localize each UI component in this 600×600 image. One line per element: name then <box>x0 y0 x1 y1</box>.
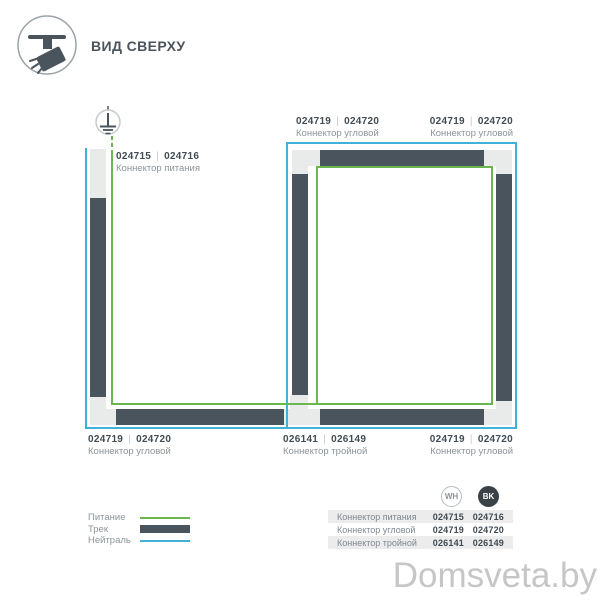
code-separator: | <box>318 434 331 445</box>
row-name: Коннектор питания <box>328 512 424 522</box>
power-line-swatch <box>140 517 190 519</box>
wh-label: WH <box>445 492 458 501</box>
bk-color-badge: BK <box>478 486 499 507</box>
part-codes: 026141|026149 <box>283 434 367 446</box>
label-corner-top-left: 024719|024720 Коннектор угловой <box>296 116 379 139</box>
row-name: Коннектор тройной <box>328 538 424 548</box>
code-bk: 024720 <box>344 116 379 127</box>
connector-name: Коннектор угловой <box>88 447 171 458</box>
part-codes: 024719|024720 <box>430 434 513 446</box>
wh-color-badge: WH <box>441 486 462 507</box>
row-bk-code: 024720 <box>464 525 504 535</box>
connector-name: Коннектор угловой <box>430 129 513 140</box>
track-left-bottom <box>116 409 284 425</box>
watermark: Domsveta.by <box>393 556 597 596</box>
row-bk-code: 026149 <box>464 538 504 548</box>
track-right-left <box>292 174 308 395</box>
connector-name: Коннектор угловой <box>296 129 379 140</box>
part-codes: 024719|024720 <box>430 116 513 128</box>
code-wh: 024719 <box>430 434 465 445</box>
legend-item-neutral: Нейтраль <box>88 535 190 547</box>
table-row: Коннектор угловой 024719 024720 <box>328 523 513 536</box>
label-triple-connector: 026141|026149 Коннектор тройной <box>283 434 367 457</box>
legend: Питание Трек Нейтраль <box>88 512 190 547</box>
parts-table-header: WH BK <box>328 486 513 510</box>
ground-icon <box>96 106 120 134</box>
row-wh-code: 024719 <box>424 525 464 535</box>
table-row: Коннектор тройной 026141 026149 <box>328 536 513 549</box>
code-separator: | <box>151 151 164 162</box>
label-corner-top-right: 024719|024720 Коннектор угловой <box>430 116 513 139</box>
track-right-top <box>320 150 484 166</box>
code-wh: 024715 <box>116 151 151 162</box>
label-corner-bottom-right: 024719|024720 Коннектор угловой <box>430 434 513 457</box>
code-bk: 024720 <box>136 434 171 445</box>
part-codes: 024719|024720 <box>88 434 171 446</box>
code-separator: | <box>465 116 478 127</box>
code-bk: 024716 <box>164 151 199 162</box>
track-bars <box>90 150 512 425</box>
code-wh: 026141 <box>283 434 318 445</box>
code-separator: | <box>465 434 478 445</box>
row-name: Коннектор угловой <box>328 525 424 535</box>
track-right-bottom <box>320 409 484 425</box>
bk-label: BK <box>483 492 495 501</box>
code-wh: 024719 <box>88 434 123 445</box>
power-connector-piece <box>90 149 106 198</box>
code-bk: 024720 <box>478 434 513 445</box>
track-bar-swatch <box>140 525 190 533</box>
table-row: Коннектор питания 024715 024716 <box>328 510 513 523</box>
neutral-line-swatch <box>140 540 190 542</box>
triple-connector-piece <box>284 395 320 425</box>
row-wh-code: 026141 <box>424 538 464 548</box>
corner-connector-top-left <box>292 150 320 174</box>
parts-table: WH BK Коннектор питания 024715 024716 Ко… <box>328 486 513 549</box>
code-wh: 024719 <box>430 116 465 127</box>
legend-label: Нейтраль <box>88 535 140 546</box>
connector-name: Коннектор питания <box>116 164 200 175</box>
connector-name: Коннектор угловой <box>430 447 513 458</box>
label-power-connector: 024715|024716 Коннектор питания <box>116 151 200 174</box>
code-bk: 026149 <box>331 434 366 445</box>
part-codes: 024719|024720 <box>296 116 379 128</box>
connector-name: Коннектор тройной <box>283 447 367 458</box>
code-separator: | <box>331 116 344 127</box>
track-left-vertical <box>90 198 106 397</box>
code-separator: | <box>123 434 136 445</box>
code-wh: 024719 <box>296 116 331 127</box>
legend-item-power: Питание <box>88 512 190 524</box>
track-right-right <box>496 174 512 401</box>
corner-connector-top-right <box>484 150 512 174</box>
legend-label: Трек <box>88 524 140 535</box>
code-bk: 024720 <box>478 116 513 127</box>
page: ВИД СВЕРХУ <box>0 0 600 600</box>
row-wh-code: 024715 <box>424 512 464 522</box>
legend-label: Питание <box>88 512 140 523</box>
part-codes: 024715|024716 <box>116 151 200 163</box>
label-corner-bottom-left: 024719|024720 Коннектор угловой <box>88 434 171 457</box>
row-bk-code: 024716 <box>464 512 504 522</box>
legend-item-track: Трек <box>88 524 190 536</box>
